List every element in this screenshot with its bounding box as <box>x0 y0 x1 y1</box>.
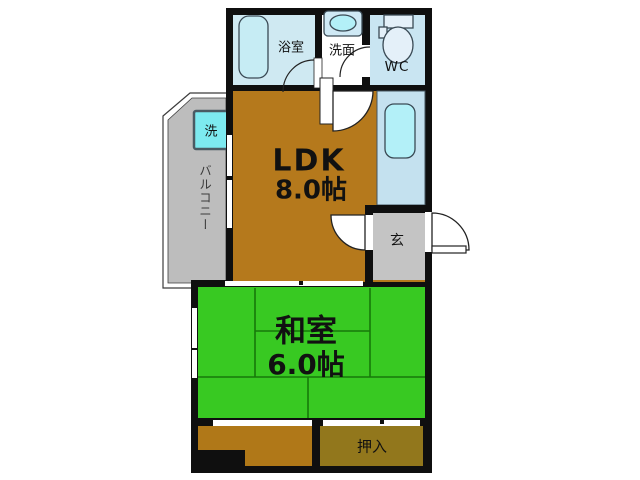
floorplan-drawing: 浴室 洗面 WC LDK 8.0帖 玄 和室 6.0帖 押入 洗 <box>0 0 640 480</box>
oshiire-label: 押入 <box>357 438 387 456</box>
washroom-door-leaf <box>320 78 333 124</box>
entrance-door-leaf <box>432 246 466 253</box>
genkan-door-opening <box>365 215 373 250</box>
ldk-label: LDK <box>272 144 345 179</box>
ldk-size-label: 8.0帖 <box>275 176 347 206</box>
wc-door-opening <box>362 45 370 77</box>
fusuma-veranda <box>213 420 312 426</box>
wc-label: WC <box>385 59 410 75</box>
floorplan: 浴室 洗面 WC LDK 8.0帖 玄 和室 6.0帖 押入 洗 バルコニー <box>0 0 640 480</box>
ldk-balcony-window <box>227 135 232 228</box>
washbasin-bowl-icon <box>330 15 356 31</box>
ldk-window-tick <box>226 176 233 180</box>
toilet-bowl-icon <box>383 27 413 63</box>
bathtub-icon <box>239 16 268 78</box>
fusuma-tick-top <box>299 281 303 285</box>
washroom-label: 洗面 <box>329 44 355 59</box>
washitsu-size-label: 6.0帖 <box>267 348 345 381</box>
washer-label: 洗 <box>204 125 217 140</box>
genkan-label: 玄 <box>390 232 404 249</box>
fusuma-oshiire <box>323 420 420 426</box>
washitsu-window-upper <box>192 308 197 348</box>
fusuma-tick-bottom <box>380 420 384 424</box>
washitsu-label: 和室 <box>275 314 337 350</box>
washitsu-window-lower <box>192 350 197 378</box>
fusuma-ldk-washitsu <box>225 281 363 286</box>
balcony-label: バルコニー <box>194 150 214 246</box>
entrance-door-opening <box>425 212 432 252</box>
toilet-tank-icon <box>384 15 413 28</box>
bathroom-label: 浴室 <box>278 40 304 56</box>
kitchen-sink-icon <box>385 104 415 158</box>
entrance-door-swing <box>432 213 469 250</box>
genkan-top-wall <box>365 205 432 213</box>
